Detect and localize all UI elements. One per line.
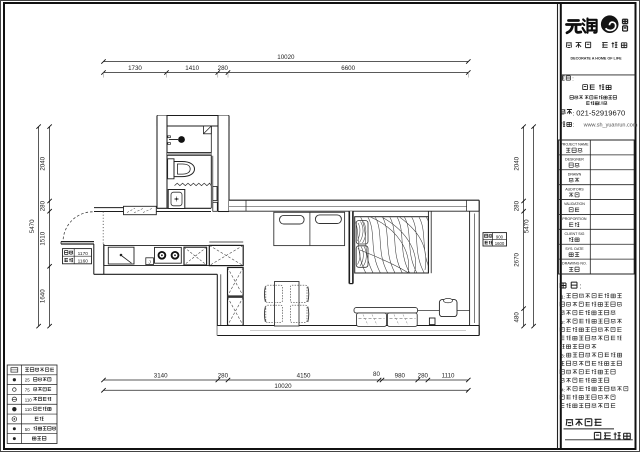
svg-text:1110: 1110: [442, 372, 455, 379]
svg-text:80: 80: [373, 371, 380, 378]
svg-text:2040: 2040: [39, 156, 46, 170]
svg-text:1640: 1640: [39, 289, 46, 303]
svg-text:3140: 3140: [154, 372, 168, 379]
svg-text:110: 110: [25, 397, 33, 402]
svg-text:J: J: [148, 259, 150, 264]
svg-text:280: 280: [218, 65, 229, 72]
svg-text:PROPORTION: PROPORTION: [562, 217, 586, 221]
svg-text:10020: 10020: [277, 54, 295, 61]
svg-text:280: 280: [513, 200, 520, 211]
svg-text:4150: 4150: [297, 372, 311, 379]
svg-text:280: 280: [218, 372, 229, 379]
svg-text::: :: [573, 110, 575, 117]
svg-text:2670: 2670: [513, 252, 520, 266]
svg-text::: :: [580, 284, 582, 291]
svg-text:6600: 6600: [341, 65, 355, 72]
svg-text:AUDITORS: AUDITORS: [565, 187, 584, 191]
svg-text::: :: [572, 76, 574, 82]
svg-text:980: 980: [395, 372, 406, 379]
svg-text:4:: 4:: [561, 387, 565, 393]
svg-text:2:: 2:: [561, 320, 565, 326]
svg-text::: :: [573, 123, 575, 129]
svg-text:5470: 5470: [523, 219, 530, 233]
svg-text:5470: 5470: [29, 219, 36, 233]
svg-text:280: 280: [39, 200, 46, 211]
svg-text:2040: 2040: [513, 156, 520, 170]
svg-text:021-52919670: 021-52919670: [576, 109, 625, 118]
svg-text:DECORATE A HOME OF LIFE: DECORATE A HOME OF LIFE: [570, 57, 622, 61]
svg-text:1600: 1600: [495, 241, 505, 246]
svg-text:1:: 1:: [561, 294, 565, 300]
svg-text:DRAWN: DRAWN: [568, 172, 582, 176]
svg-text:VALIDATION: VALIDATION: [564, 202, 585, 206]
svg-text:900: 900: [496, 234, 504, 239]
svg-text:75: 75: [25, 388, 30, 393]
svg-text:10020: 10020: [274, 383, 292, 390]
svg-text:SYS. DATE: SYS. DATE: [565, 247, 584, 251]
svg-text:PROJECT NAME: PROJECT NAME: [560, 143, 589, 147]
svg-text:1510: 1510: [39, 231, 46, 245]
svg-text:CLIENT SIG: CLIENT SIG: [564, 232, 584, 236]
svg-text:DESIGNER: DESIGNER: [565, 157, 584, 161]
svg-text:110: 110: [25, 407, 33, 412]
svg-text:DRAWING NO.: DRAWING NO.: [562, 262, 587, 266]
svg-text:280: 280: [418, 372, 429, 379]
svg-text:www.sh_yuanrun.com: www.sh_yuanrun.com: [583, 123, 638, 129]
svg-text:50: 50: [25, 427, 30, 432]
svg-text:1160: 1160: [78, 259, 89, 265]
svg-text:480: 480: [513, 312, 520, 323]
svg-text:10: 10: [599, 101, 604, 106]
svg-text:1170: 1170: [78, 251, 89, 257]
svg-text:3:: 3:: [561, 354, 565, 360]
svg-text:25: 25: [25, 378, 30, 383]
svg-text:1410: 1410: [185, 65, 199, 72]
svg-text:1730: 1730: [128, 65, 142, 72]
